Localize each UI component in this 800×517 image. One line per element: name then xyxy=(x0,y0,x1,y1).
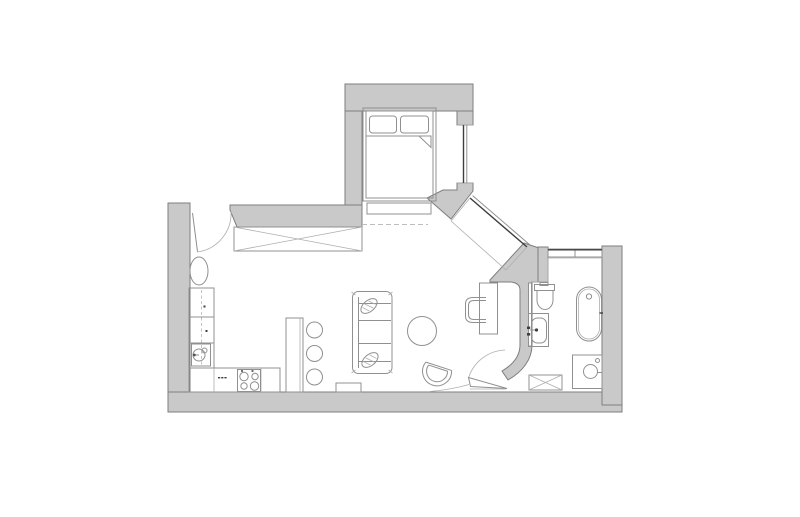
entry-door-leaf xyxy=(193,213,198,252)
bar-stool xyxy=(307,322,323,338)
coffee-table xyxy=(408,317,437,346)
oval-mirror xyxy=(190,257,208,285)
pillow-right xyxy=(401,116,429,133)
burner xyxy=(250,382,258,390)
entry-door-arc xyxy=(197,211,231,252)
desk xyxy=(480,283,498,334)
bed-frame xyxy=(363,108,436,201)
bedroom-window xyxy=(457,125,473,183)
burner xyxy=(241,383,247,389)
burner xyxy=(240,372,248,380)
blanket-fold xyxy=(419,136,431,148)
bed-bench xyxy=(367,203,431,214)
counter-detail-marks xyxy=(218,377,227,378)
desk-area xyxy=(466,283,498,334)
mattress xyxy=(366,111,433,198)
top-left-wall xyxy=(230,205,362,227)
bar-stool xyxy=(307,346,323,362)
sofa-cushion xyxy=(358,296,380,317)
bathroom-top-left-corner xyxy=(538,247,548,282)
floor-plan-svg xyxy=(0,0,800,517)
side-table xyxy=(336,383,361,392)
wardrobe xyxy=(234,225,428,252)
bedroom-top-wall xyxy=(345,84,473,111)
bathtub xyxy=(577,287,604,341)
desk-chair xyxy=(466,298,487,323)
bar-counter xyxy=(286,318,303,392)
toilet xyxy=(535,283,555,310)
bathroom-window xyxy=(548,249,602,257)
armchair xyxy=(419,362,453,390)
right-wall xyxy=(602,246,622,405)
bar-area xyxy=(286,318,323,392)
kitchen-counter-bottom xyxy=(189,368,280,392)
double-bed xyxy=(363,108,436,214)
shower-unit xyxy=(573,355,603,389)
pillow-left xyxy=(370,116,397,133)
bottom-wall xyxy=(168,392,622,412)
burner xyxy=(252,373,258,379)
entry xyxy=(190,211,231,285)
sofa-cushion xyxy=(359,350,381,371)
stove xyxy=(238,370,261,392)
kitchen xyxy=(189,288,280,392)
bedroom-right-wall-upper xyxy=(457,111,473,125)
sofa xyxy=(336,292,393,393)
left-wall xyxy=(168,203,190,394)
bathroom-door-leaf xyxy=(469,378,508,389)
washing-machine xyxy=(529,375,562,390)
bar-stool xyxy=(307,369,323,385)
bathroom-door-arc xyxy=(469,350,506,378)
